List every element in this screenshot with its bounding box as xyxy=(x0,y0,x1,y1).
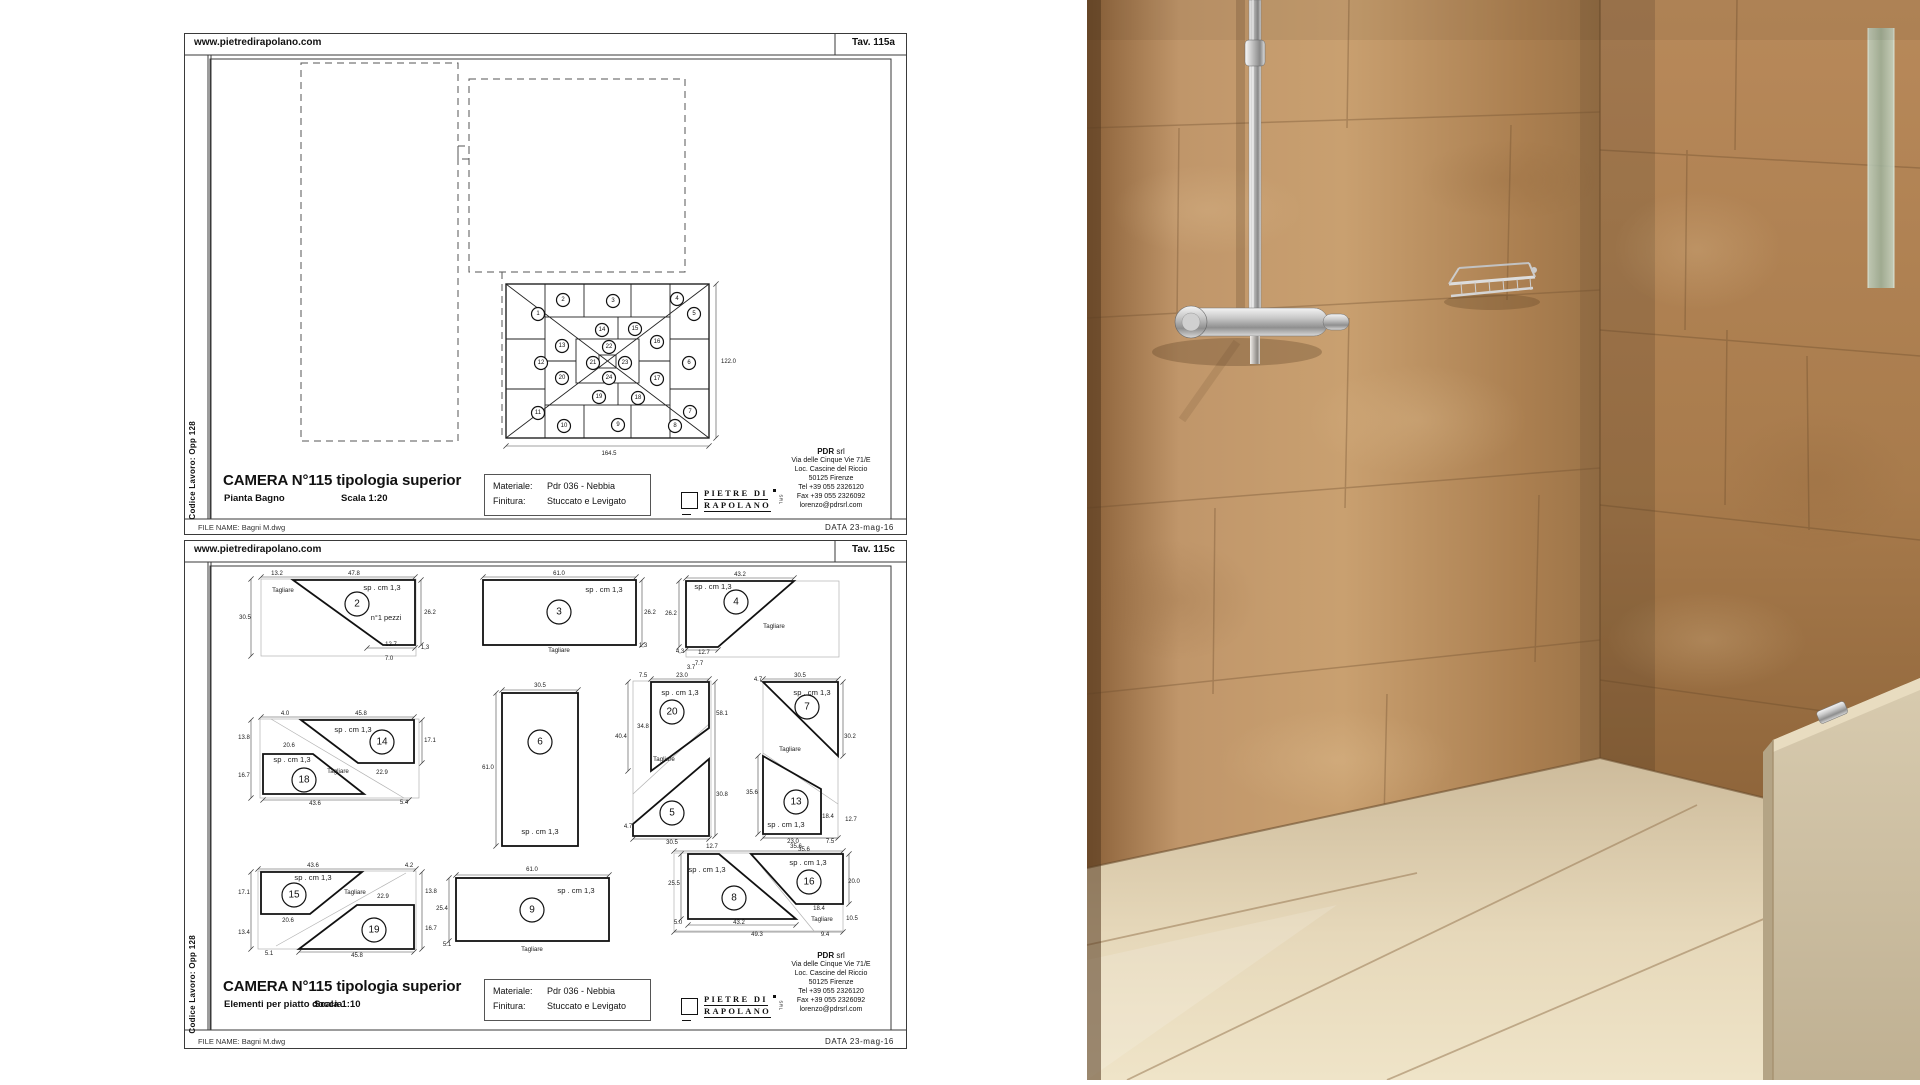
dim-label: 1,3 xyxy=(639,643,648,649)
address-line: Via delle Cinque Vie 71/E xyxy=(741,456,921,465)
address-line: Tel +39 055 2326120 xyxy=(741,483,921,492)
sheet1-tav-number: Tav. 115a xyxy=(852,37,895,48)
room-outline-dashed xyxy=(301,63,685,441)
sheet1-scale: Scala 1:20 xyxy=(341,493,387,504)
dim-label: 61.0 xyxy=(482,765,494,771)
material-value: Pdr 036 - Nebbia xyxy=(547,481,615,491)
dim-label: 12.7 xyxy=(385,642,397,648)
dim-label: 4.7 xyxy=(624,824,633,830)
dim-label: 17.1 xyxy=(424,738,436,744)
piece-number: 23 xyxy=(622,360,629,366)
dim-label: 5.1 xyxy=(443,942,452,948)
dim-label: 7.5 xyxy=(639,673,648,679)
dim-label: 23.0 xyxy=(676,673,688,679)
dim-label: 12.7 xyxy=(698,650,710,656)
dim-label: sp . cm 1,3 xyxy=(789,858,826,867)
dim-label: 45.8 xyxy=(351,953,363,959)
pipe-bracket xyxy=(1245,40,1265,66)
dim-label: 30.5 xyxy=(239,615,251,621)
dim-label: 45.8 xyxy=(355,711,367,717)
sheet2-generated-labels: 13.247.830.5Tagliaresp . cm 1,3n°1 pezzi… xyxy=(238,571,860,959)
dim-label: sp . cm 1,3 xyxy=(661,688,698,697)
mixer-right-handle xyxy=(1323,314,1349,330)
company-suffix: srl xyxy=(834,447,845,456)
dim-label: 4.7 xyxy=(754,677,763,683)
dim-label: 30.2 xyxy=(844,734,856,740)
piece-number: 14 xyxy=(376,737,388,748)
dim-label: 4.2 xyxy=(405,863,414,869)
dim-label: Tagliare xyxy=(327,768,349,775)
piece-number: 4 xyxy=(733,597,739,608)
logo-dash xyxy=(682,1020,691,1021)
dim-label: 20.6 xyxy=(283,743,295,749)
dim-label: sp . cm 1,3 xyxy=(557,886,594,895)
basket-wall-mount xyxy=(1531,267,1537,273)
piece-number: 7 xyxy=(804,702,810,713)
dim-label: 26.2 xyxy=(665,611,677,617)
dim-label: 7.5 xyxy=(826,839,835,845)
dim-label: 61.0 xyxy=(526,867,538,873)
sheet1-filename: FILE NAME: Bagni M.dwg xyxy=(198,523,285,532)
glass-panel-edge xyxy=(1868,28,1894,288)
dim-label: 10.5 xyxy=(846,916,858,922)
dim-label: 26.2 xyxy=(424,610,436,616)
sheet1-generated-labels: 1234567891011121314151617181920212223241… xyxy=(503,281,736,457)
dim-label: 30.8 xyxy=(716,792,728,798)
dim-label: Tagliare xyxy=(779,746,801,753)
piece-number: 20 xyxy=(666,707,678,718)
finish-label: Finitura: xyxy=(493,1001,526,1011)
dim-label: 16.7 xyxy=(425,926,437,932)
dim-label: sp . cm 1,3 xyxy=(688,865,725,874)
dim-label: 35.6 xyxy=(790,844,802,850)
shower-photo xyxy=(1087,0,1920,1080)
dim-label: 58.1 xyxy=(716,711,728,717)
dim-label: sp . cm 1,3 xyxy=(363,583,400,592)
drawing-sheet-115c: 13.247.830.5Tagliaresp . cm 1,3n°1 pezzi… xyxy=(184,540,907,1049)
address-line: Tel +39 055 2326120 xyxy=(741,987,921,996)
dim-label: 43.2 xyxy=(734,572,746,578)
piece-number: 3 xyxy=(556,607,562,618)
sheet1-address-block: PDR srl Via delle Cinque Vie 71/E Loc. C… xyxy=(741,447,921,510)
piece-number: 18 xyxy=(298,775,310,786)
shower-photo-svg xyxy=(1087,0,1920,1080)
logo-square-icon xyxy=(681,998,698,1015)
pipe-shadow xyxy=(1236,0,1245,325)
dim-label: Tagliare xyxy=(272,587,294,594)
photo-top-vignette xyxy=(1087,0,1920,40)
logo-square-icon xyxy=(681,492,698,509)
dim-label: 13.8 xyxy=(425,889,437,895)
dim-label: sp . cm 1,3 xyxy=(585,585,622,594)
mixer-dial-center xyxy=(1182,313,1200,331)
plan-dimension: 122.0 xyxy=(721,359,737,365)
dim-label: 12.7 xyxy=(845,817,857,823)
dim-label: 13.8 xyxy=(238,735,250,741)
dim-label: 5.0 xyxy=(674,920,683,926)
dim-label: 13.2 xyxy=(271,571,283,577)
dim-label: n°1 pezzi xyxy=(371,613,402,622)
dim-label: 5.4 xyxy=(400,800,409,806)
company-name: PDR xyxy=(817,951,834,960)
material-label: Materiale: xyxy=(493,986,533,996)
dim-label: Tagliare xyxy=(811,916,833,923)
sheet2-url: www.pietredirapolano.com xyxy=(194,544,321,555)
dim-label: 18.4 xyxy=(813,906,825,912)
piece-number: 16 xyxy=(654,339,661,345)
piece-number: 13 xyxy=(559,343,566,349)
dim-label: 30.5 xyxy=(666,840,678,846)
dim-label: 43.6 xyxy=(309,801,321,807)
sheet1-date: DATA 23-mag-16 xyxy=(825,523,894,532)
dim-label: sp . cm 1,3 xyxy=(334,725,371,734)
dim-label: Tagliare xyxy=(763,623,785,630)
material-label: Materiale: xyxy=(493,481,533,491)
dim-label: 49.3 xyxy=(751,932,763,938)
sheet2-date: DATA 23-mag-16 xyxy=(825,1037,894,1046)
piece-number: 22 xyxy=(606,344,613,350)
piece-19-outline xyxy=(299,905,414,949)
piece-number: 8 xyxy=(731,893,737,904)
piece-number: 20 xyxy=(559,375,566,381)
address-line: Fax +39 055 2326092 xyxy=(741,492,921,501)
dim-label: 22.9 xyxy=(376,770,388,776)
dim-label: 7.7 xyxy=(695,661,704,667)
dim-label: 12.7 xyxy=(706,844,718,850)
dim-label: Tagliare xyxy=(521,946,543,953)
dim-label: 30.5 xyxy=(794,673,806,679)
piece-number: 24 xyxy=(606,375,613,381)
sheet2-address-block: PDR srl Via delle Cinque Vie 71/E Loc. C… xyxy=(741,951,921,1014)
finish-value: Stuccato e Levigato xyxy=(547,496,626,506)
finish-label: Finitura: xyxy=(493,496,526,506)
mixer-lower-stub xyxy=(1250,336,1260,364)
piece-number: 18 xyxy=(635,395,642,401)
address-line: Fax +39 055 2326092 xyxy=(741,996,921,1005)
dim-label: Tagliare xyxy=(653,756,675,763)
piece-number: 16 xyxy=(803,877,815,888)
dim-label: 20.6 xyxy=(282,918,294,924)
piece-number: 11 xyxy=(535,410,542,416)
plan-dimension: 164.5 xyxy=(601,451,617,457)
dim-label: 43.6 xyxy=(307,863,319,869)
dim-label: 47.8 xyxy=(348,571,360,577)
dim-label: 3.7 xyxy=(687,665,696,671)
piece-number: 10 xyxy=(561,423,568,429)
sheet1-material-box: Materiale: Pdr 036 - Nebbia Finitura: St… xyxy=(484,474,651,516)
piece-number: 21 xyxy=(590,360,597,366)
address-line: Loc. Cascine del Riccio xyxy=(741,465,921,474)
dim-label: sp . cm 1,3 xyxy=(767,820,804,829)
company-name: PDR xyxy=(817,447,834,456)
sheet2-title: CAMERA N°115 tipologia superior xyxy=(223,978,461,995)
dim-label: 4.0 xyxy=(281,711,290,717)
dim-label: 61.0 xyxy=(553,571,565,577)
dim-label: 1,3 xyxy=(421,645,430,651)
sheet2-material-box: Materiale: Pdr 036 - Nebbia Finitura: St… xyxy=(484,979,651,1021)
sheet1-url: www.pietredirapolano.com xyxy=(194,37,321,48)
sheet2-filename: FILE NAME: Bagni M.dwg xyxy=(198,1037,285,1046)
dim-label: 26.2 xyxy=(644,610,656,616)
half-wall-partition xyxy=(1763,678,1920,1080)
piece-number: 2 xyxy=(354,599,360,610)
material-value: Pdr 036 - Nebbia xyxy=(547,986,615,996)
sheet2-codice-lavoro: Codice Lavoro: Opp 128 xyxy=(188,935,197,1034)
piece-6-outline xyxy=(502,693,578,846)
dim-label: Tagliare xyxy=(548,647,570,654)
address-line: Via delle Cinque Vie 71/E xyxy=(741,960,921,969)
dim-label: 25.4 xyxy=(436,906,448,912)
piece-number: 14 xyxy=(599,327,606,333)
dim-label: 4,3 xyxy=(676,649,685,655)
piece-number: 5 xyxy=(669,808,675,819)
photo-left-shadow-strip xyxy=(1087,0,1101,1080)
piece-number: 12 xyxy=(538,360,545,366)
sheet1-title: CAMERA N°115 tipologia superior xyxy=(223,472,461,489)
sheet2-scale: Scala 1:10 xyxy=(314,999,360,1010)
sheet1-codice-lavoro: Codice Lavoro: Opp 128 xyxy=(188,421,197,520)
piece-number: 15 xyxy=(632,326,639,332)
dim-label: 16.7 xyxy=(238,773,250,779)
piece-number: 6 xyxy=(537,737,543,748)
address-line: lorenzo@pdrsrl.com xyxy=(741,1005,921,1014)
sheet1-subtitle: Pianta Bagno xyxy=(224,493,285,504)
dim-label: sp . cm 1,3 xyxy=(294,873,331,882)
dim-label: 13.4 xyxy=(238,930,250,936)
dim-label: sp . cm 1,3 xyxy=(273,755,310,764)
address-line: Loc. Cascine del Riccio xyxy=(741,969,921,978)
address-line: 50125 Firenze xyxy=(741,474,921,483)
dim-label: 17.1 xyxy=(238,890,250,896)
address-line: 50125 Firenze xyxy=(741,978,921,987)
sheet2-tav-number: Tav. 115c xyxy=(852,544,895,555)
piece-number: 17 xyxy=(654,376,661,382)
logo-dash xyxy=(682,514,691,515)
dim-label: 30.5 xyxy=(534,683,546,689)
dim-label: 7.0 xyxy=(385,656,394,662)
piece-number: 9 xyxy=(529,905,535,916)
dim-label: 34.8 xyxy=(637,724,649,730)
dim-label: 5.1 xyxy=(265,951,274,957)
drawing-sheet-115a: 1234567891011121314151617181920212223241… xyxy=(184,33,907,535)
piece-number: 13 xyxy=(790,797,802,808)
finish-value: Stuccato e Levigato xyxy=(547,1001,626,1011)
dim-label: 43.2 xyxy=(733,920,745,926)
dim-label: 22.9 xyxy=(377,894,389,900)
dim-label: 25.5 xyxy=(668,881,680,887)
piece-number: 15 xyxy=(288,890,300,901)
piece-number: 19 xyxy=(368,925,380,936)
half-wall-side-face xyxy=(1763,740,1773,1080)
dim-label: 9.4 xyxy=(821,932,830,938)
dim-label: 35.6 xyxy=(746,790,758,796)
dim-label: sp . cm 1,3 xyxy=(521,827,558,836)
dim-label: 18.4 xyxy=(822,814,834,820)
dim-label: 40.4 xyxy=(615,734,627,740)
address-line: lorenzo@pdrsrl.com xyxy=(741,501,921,510)
piece-number: 19 xyxy=(596,394,603,400)
dim-label: Tagliare xyxy=(344,889,366,896)
dim-label: sp . cm 1,3 xyxy=(694,582,731,591)
company-suffix: srl xyxy=(834,951,845,960)
dim-label: 20.0 xyxy=(848,879,860,885)
